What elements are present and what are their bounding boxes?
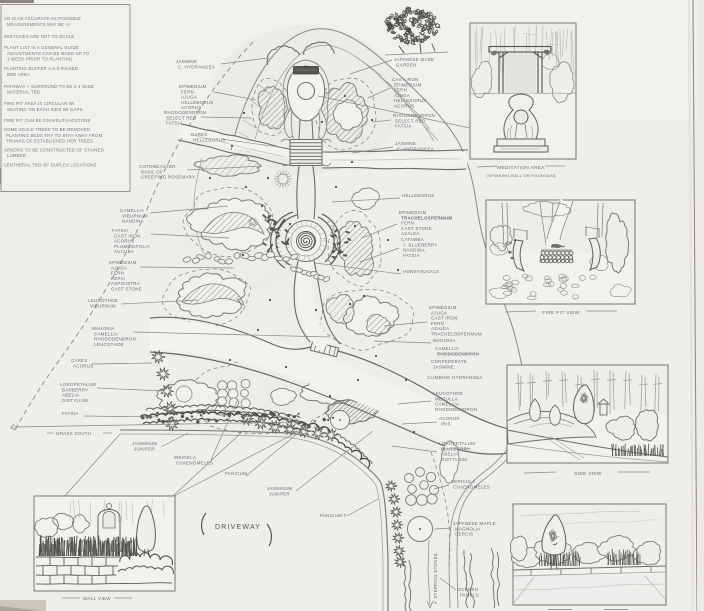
- svg-text:SKETCHES ARE NOT TO SCALE: SKETCHES ARE NOT TO SCALE: [4, 34, 74, 39]
- svg-text:CLIMBING HYDRANGEA: CLIMBING HYDRANGEA: [427, 375, 483, 380]
- svg-text:LUMBER: LUMBER: [7, 153, 26, 158]
- svg-text:(SPINNING BALL OR FOUNTAIN): (SPINNING BALL OR FOUNTAIN): [486, 173, 556, 178]
- svg-text:SIDE VIEW: SIDE VIEW: [574, 471, 602, 477]
- svg-text:PLANT LIST IS A GENERAL GUIDE: PLANT LIST IS A GENERAL GUIDE: [4, 45, 79, 50]
- svg-text:PLANTING BEDS TRY TO STAY AWAY: PLANTING BEDS TRY TO STAY AWAY FROM: [6, 133, 103, 138]
- svg-text:1 WEEK PRIOR TO PLANTING: 1 WEEK PRIOR TO PLANTING: [7, 57, 73, 62]
- svg-text:PANICUM T: PANICUM T: [320, 513, 346, 518]
- svg-text:SCREENPANELS: SCREENPANELS: [458, 587, 479, 597]
- svg-text:PATHWAY + SURROUND TO BE 3-4 W: PATHWAY + SURROUND TO BE 3-4 WIDE: [4, 84, 94, 89]
- svg-text:CAMELLIAVIBURNUMNANDINA: CAMELLIAVIBURNUMNANDINA: [120, 208, 148, 224]
- svg-text:FIRE PIT CAN BE GRAVEL/FLAGSTO: FIRE PIT CAN BE GRAVEL/FLAGSTONE: [4, 118, 91, 123]
- svg-text:LENTHERAL TBD OF DUPLEX LOCATI: LENTHERAL TBD OF DUPLEX LOCATIONS: [4, 163, 97, 168]
- svg-text:MAHONIA: MAHONIA: [433, 338, 456, 343]
- svg-text:SOME SCALE TREES TO BE REMOVED: SOME SCALE TREES TO BE REMOVED: [4, 127, 90, 132]
- svg-text:PANICUM: PANICUM: [225, 471, 247, 476]
- svg-text:TRUNKS OF ESTABLISHED HER TREE: TRUNKS OF ESTABLISHED HER TREES: [6, 139, 93, 144]
- svg-text:JASMINUMJUNIPER: JASMINUMJUNIPER: [267, 486, 292, 496]
- svg-text:AN IS AS ACCURATE AS POSSIBLE: AN IS AS ACCURATE AS POSSIBLE: [4, 16, 81, 21]
- svg-text:MEDITATION AREA: MEDITATION AREA: [497, 165, 545, 171]
- svg-text:4' STEPPING STONES: 4' STEPPING STONES: [433, 553, 438, 604]
- svg-text:SEATING ON EACH SIDE W/ GAPS: SEATING ON EACH SIDE W/ GAPS: [7, 107, 83, 112]
- svg-text:DRIVEWAY: DRIVEWAY: [215, 524, 261, 531]
- svg-text:BED AREA: BED AREA: [7, 72, 30, 77]
- svg-text:MATERIAL TBD: MATERIAL TBD: [7, 90, 40, 95]
- svg-text:JASMINUMJUNIPER: JASMINUMJUNIPER: [132, 441, 157, 451]
- svg-text:FIRE PIT VIEW: FIRE PIT VIEW: [542, 310, 579, 316]
- svg-text:LEUCOTHOEVIBURNUM: LEUCOTHOEVIBURNUM: [88, 298, 118, 308]
- svg-text:HONEYSUCKLE: HONEYSUCKLE: [403, 269, 439, 274]
- svg-text:HELLEBORUS: HELLEBORUS: [402, 193, 435, 198]
- svg-text:WALL VIEW: WALL VIEW: [83, 596, 111, 601]
- svg-text:FATSIA: FATSIA: [62, 411, 79, 416]
- svg-text:MEASUREMENTS MAY BE +/-: MEASUREMENTS MAY BE +/-: [7, 22, 72, 27]
- svg-text:GRASS SOUTH: GRASS SOUTH: [56, 431, 91, 436]
- svg-text:ARBORS TO BE CONSTRUCTED OF ST: ARBORS TO BE CONSTRUCTED OF STAINED: [4, 148, 104, 153]
- svg-text:ADJUSTMENTS CAN BE MADE UP TO: ADJUSTMENTS CAN BE MADE UP TO: [7, 51, 90, 56]
- svg-text:PLANTING BUFFER 4-6 X RAISED: PLANTING BUFFER 4-6 X RAISED: [4, 66, 78, 71]
- svg-text:FIRE PIT AREA IS CIRCULAR W/: FIRE PIT AREA IS CIRCULAR W/: [4, 101, 75, 106]
